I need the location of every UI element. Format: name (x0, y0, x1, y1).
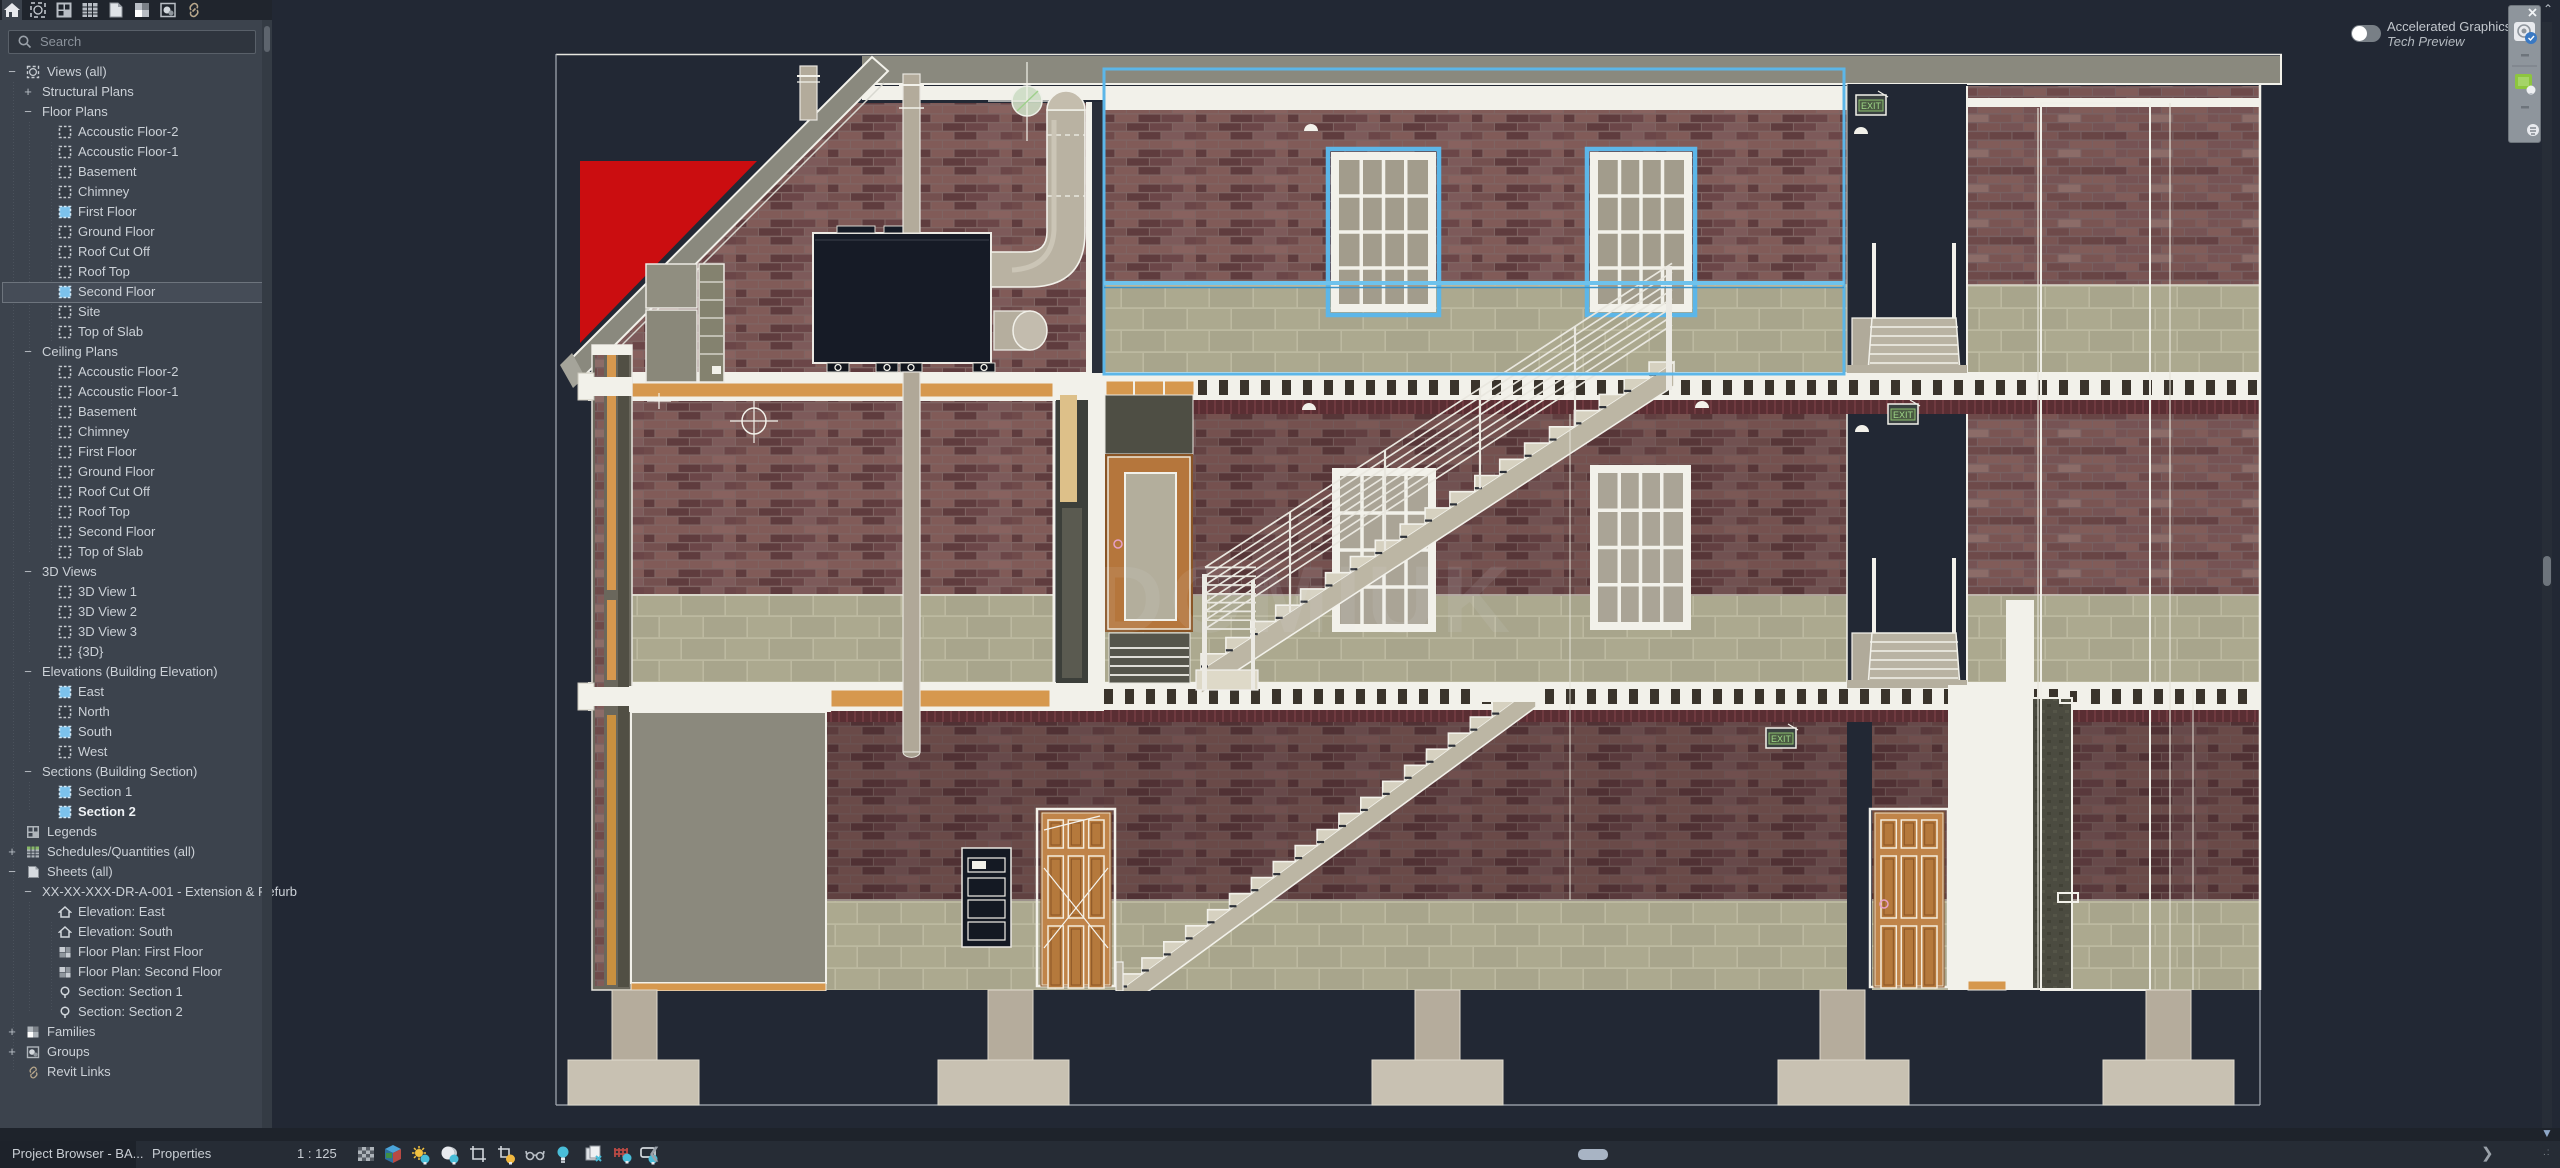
svg-text:EXIT: EXIT (1861, 101, 1882, 111)
svg-text:DOMIUK: DOMIUK (1095, 547, 1516, 653)
svg-text:EXIT: EXIT (1771, 734, 1792, 744)
svg-text:EXIT: EXIT (1893, 410, 1914, 420)
